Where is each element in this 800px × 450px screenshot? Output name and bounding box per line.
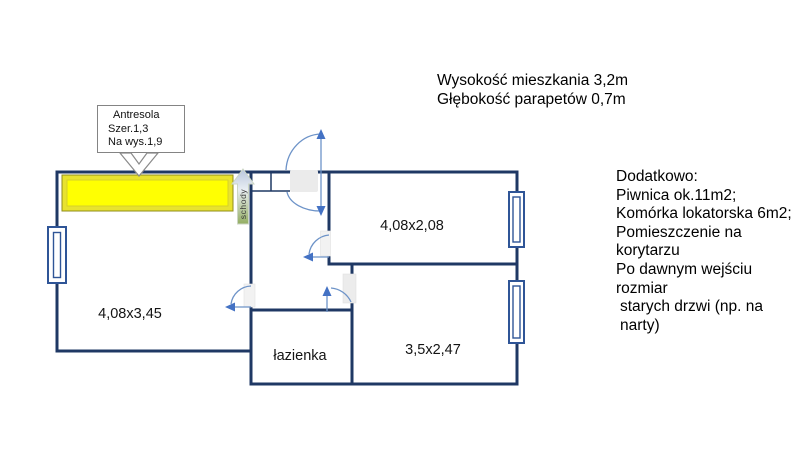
arrow-up-icon xyxy=(323,286,332,296)
bottom-right-room-dimensions: 3,5x2,47 xyxy=(405,342,461,358)
antresola-highlight xyxy=(62,175,233,211)
note-height: Wysokość mieszkania 3,2m xyxy=(437,71,628,90)
additional-info: Dodatkowo: Piwnica ok.11m2; Komórka loka… xyxy=(616,168,800,335)
additional-line: starych drzwi (np. na narty) xyxy=(620,298,800,335)
arrow-left-icon xyxy=(225,303,235,312)
living-room-dimensions: 4,08x3,45 xyxy=(98,306,162,322)
window-left xyxy=(48,227,66,283)
window-top-right xyxy=(509,192,524,247)
additional-title: Dodatkowo: xyxy=(616,168,800,187)
stairs-label: schody xyxy=(238,189,248,220)
arrow-left-icon xyxy=(303,253,313,262)
note-sill-depth: Głębokość parapetów 0,7m xyxy=(437,90,628,109)
additional-line: Pomieszczenie na korytarzu xyxy=(616,224,800,261)
door-leaf xyxy=(321,231,331,256)
callout-line3: Na wys.1,9 xyxy=(108,136,184,150)
additional-line: Piwnica ok.11m2; xyxy=(616,187,800,206)
door-living-room xyxy=(225,284,255,312)
window-bottom-right xyxy=(509,281,524,343)
apartment-notes: Wysokość mieszkania 3,2m Głębokość parap… xyxy=(437,71,628,109)
additional-line: Komórka lokatorska 6m2; xyxy=(616,205,800,224)
additional-line: Po dawnym wejściu rozmiar xyxy=(616,261,800,298)
floor-plan-page: schody Antresola Szer.1,3 Na wys.1,9 Wys… xyxy=(0,0,800,450)
entrance-door-leaf xyxy=(290,170,318,192)
bathroom-label: łazienka xyxy=(273,348,326,364)
door-top-right-room xyxy=(303,231,331,262)
hall-closet xyxy=(251,173,290,191)
callout-line1: Antresola xyxy=(113,109,184,123)
top-right-room-dimensions: 4,08x2,08 xyxy=(380,218,444,234)
antresola-callout: Antresola Szer.1,3 Na wys.1,9 xyxy=(97,105,185,153)
callout-line2: Szer.1,3 xyxy=(108,123,184,137)
